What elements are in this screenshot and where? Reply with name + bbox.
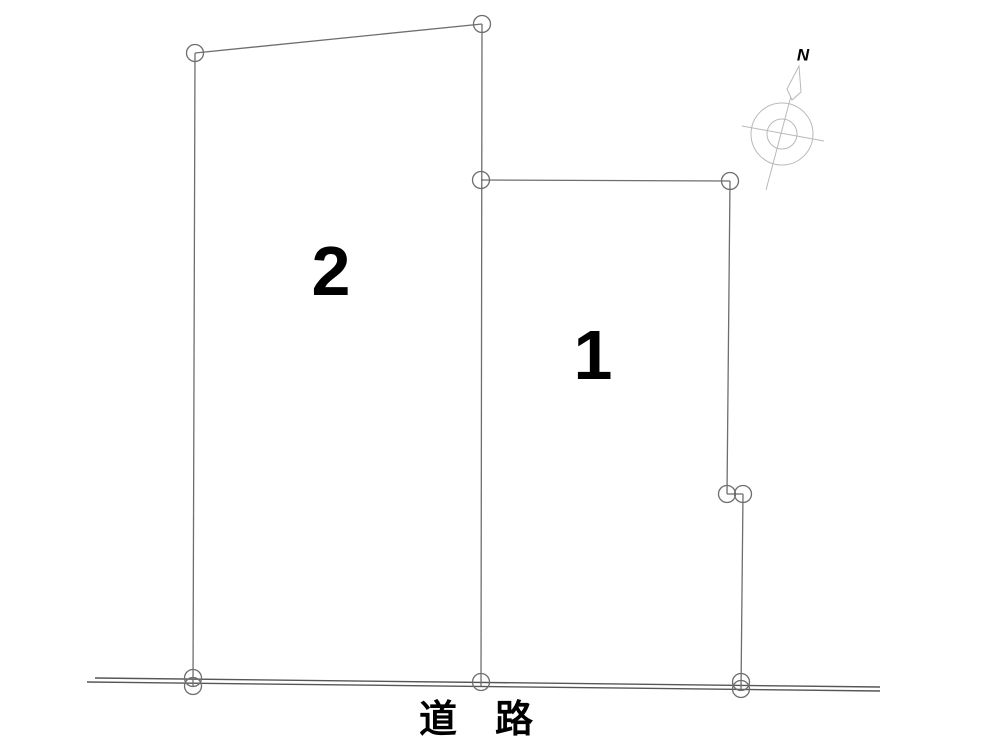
road-label: 道 路 <box>419 701 533 739</box>
lot1-top-edge <box>481 180 730 181</box>
compass-cross-line <box>742 126 824 141</box>
lot-plan-canvas: 2 1 道 路 N <box>0 0 1000 751</box>
lot1-right-edge-lower <box>741 494 743 690</box>
lot2-left-edge <box>193 53 195 687</box>
lot2-lot1-shared-edge <box>481 24 482 686</box>
lot-2-number-label: 2 <box>312 236 351 306</box>
lot2-top-edge <box>195 24 482 53</box>
road-line-upper <box>95 678 880 687</box>
compass-inner-circle <box>767 119 797 149</box>
compass-north-label: N <box>797 47 809 64</box>
compass-needle-icon <box>787 66 801 100</box>
lot1-right-edge-upper <box>727 181 730 494</box>
lot-plan-drawing <box>0 0 1000 751</box>
lot-1-number-label: 1 <box>574 320 613 390</box>
compass-outer-circle <box>751 103 813 165</box>
